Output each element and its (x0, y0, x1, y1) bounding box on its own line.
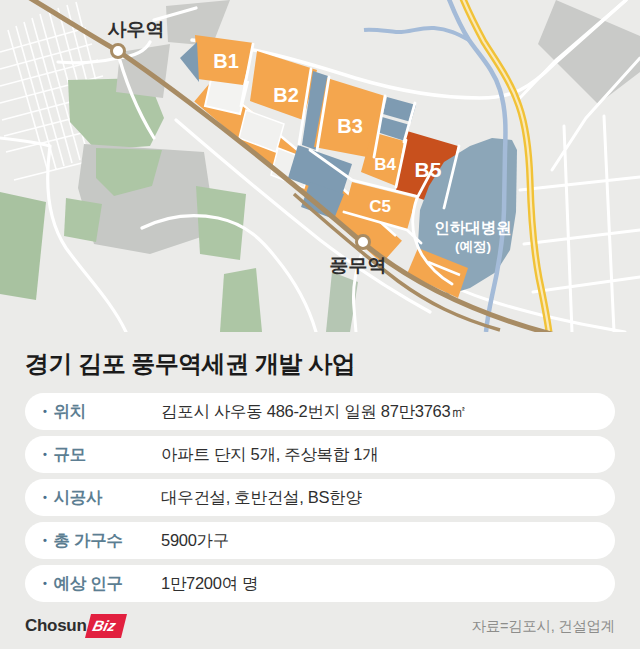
block-label-b5: B5 (415, 158, 442, 181)
bullet-icon: • (43, 492, 47, 503)
development-map: 사우역 풍무역 B1 B2 B3 B4 B5 C5 인하대병원 (예정) (0, 0, 640, 332)
source-credit: 자료=김포시, 건설업계 (472, 617, 615, 636)
logo-biz-badge: Biz (85, 614, 126, 638)
info-row-scale: •규모 아파트 단지 5개, 주상복합 1개 (25, 436, 615, 473)
row-value: 대우건설, 호반건설, BS한양 (161, 487, 362, 509)
info-row-population: •예상 인구 1만7200여 명 (25, 565, 615, 602)
row-label-text: 예상 인구 (54, 573, 123, 595)
info-panel: 경기 김포 풍무역세권 개발 사업 •위치 김포시 사우동 486-2번지 일원… (0, 348, 640, 638)
station-label-pungmu: 풍무역 (330, 255, 387, 276)
row-value: 5900가구 (161, 530, 229, 552)
row-label: •총 가구수 (43, 530, 161, 552)
row-label-text: 총 가구수 (54, 530, 123, 552)
station-marker-pungmu (357, 236, 370, 249)
row-value: 1만7200여 명 (161, 573, 258, 595)
park-green-bottom (220, 268, 262, 332)
footer: Chosun Biz 자료=김포시, 건설업계 (25, 614, 615, 638)
park-green-mid (196, 186, 246, 260)
hospital-label-line2: (예정) (455, 239, 491, 254)
block-label-b4: B4 (374, 155, 396, 174)
chosunbiz-logo: Chosun Biz (25, 614, 124, 638)
hospital-label-line1: 인하대병원 (434, 219, 512, 236)
logo-chosun-text: Chosun (25, 616, 86, 636)
station-label-sau: 사우역 (108, 19, 165, 40)
row-label: •규모 (43, 444, 161, 466)
block-label-b3: B3 (337, 115, 363, 137)
row-label-text: 규모 (54, 444, 86, 466)
row-label: •위치 (43, 401, 161, 423)
row-label: •예상 인구 (43, 573, 161, 595)
info-row-location: •위치 김포시 사우동 486-2번지 일원 87만3763㎡ (25, 393, 615, 430)
station-marker-sau (112, 45, 125, 58)
info-row-households: •총 가구수 5900가구 (25, 522, 615, 559)
block-label-c5: C5 (369, 197, 391, 216)
bullet-icon: • (43, 535, 47, 546)
row-label-text: 위치 (54, 401, 86, 423)
park-green-hill-2 (64, 198, 102, 242)
row-value: 김포시 사우동 486-2번지 일원 87만3763㎡ (161, 401, 467, 423)
page-title: 경기 김포 풍무역세권 개발 사업 (25, 348, 615, 380)
bullet-icon: • (43, 406, 47, 417)
block-label-b1: B1 (213, 50, 239, 72)
row-label-text: 시공사 (54, 487, 103, 509)
bullet-icon: • (43, 578, 47, 589)
row-label: •시공사 (43, 487, 161, 509)
info-row-builders: •시공사 대우건설, 호반건설, BS한양 (25, 479, 615, 516)
row-value: 아파트 단지 5개, 주상복합 1개 (161, 444, 378, 466)
block-label-b2: B2 (273, 84, 299, 106)
bullet-icon: • (43, 449, 47, 460)
infographic-frame: 사우역 풍무역 B1 B2 B3 B4 B5 C5 인하대병원 (예정) 경기 … (0, 0, 640, 649)
